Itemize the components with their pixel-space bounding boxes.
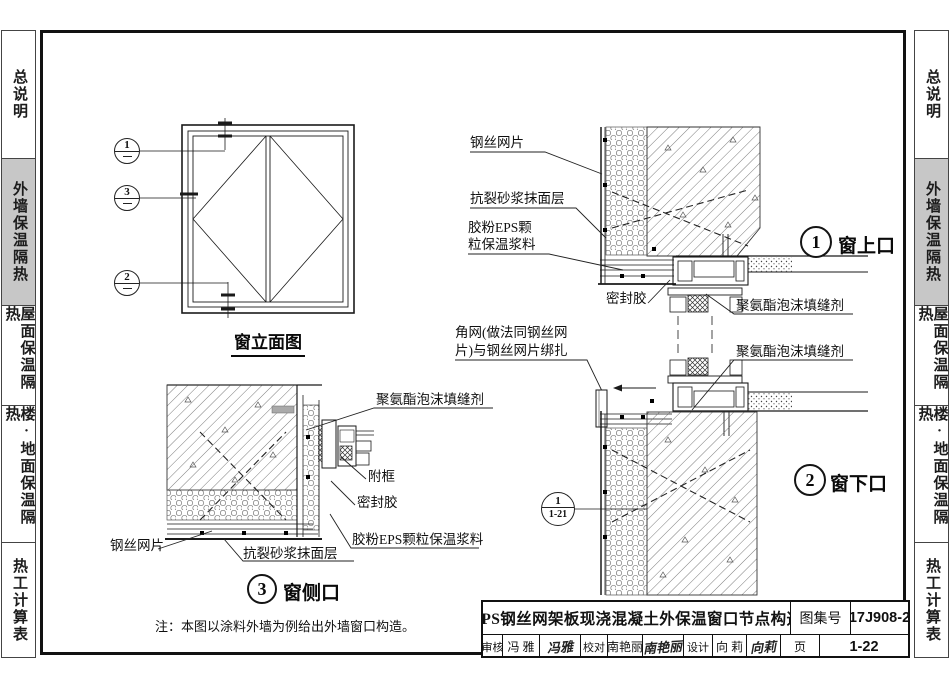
title-block-row2: 审核 冯 雅 冯雅 校对 南艳丽 南艳丽 设计 向 莉 向莉 页 1-22 xyxy=(483,635,908,658)
tab-label: 总说明 xyxy=(924,69,939,120)
callout-eps-slurry-line1: 胶粉EPS颗 xyxy=(468,219,532,236)
detail-1-circle: 1 xyxy=(800,226,832,258)
tab-label: 屋面保温隔热 xyxy=(917,306,947,405)
callout-sealant-d1: 密封胶 xyxy=(606,290,647,307)
signature: 南艳丽 xyxy=(643,636,683,658)
checker-signature: 南艳丽 xyxy=(643,635,684,658)
tab-exterior-wall-insulation: 外墙保温隔热 xyxy=(2,159,35,306)
atlas-page: 总说明 外墙保温隔热 屋面保温隔热 楼·地面保温隔热 热工计算表 总说明 外墙保… xyxy=(0,0,950,691)
marker-number: 2 xyxy=(124,272,130,283)
tab-label: 热工计算表 xyxy=(924,558,939,643)
marker-dash xyxy=(123,203,132,204)
detail-reference-bubble: 1 1-21 xyxy=(541,492,575,526)
ref-number: 1 xyxy=(555,495,561,507)
marker-number: 1 xyxy=(124,140,130,151)
callout-corner-mesh-line2: 片)与钢丝网片绑扎 xyxy=(455,342,568,359)
tab-label: 楼·地面保温隔热 xyxy=(917,406,947,542)
marker-dash xyxy=(123,288,132,289)
checker-name: 南艳丽 xyxy=(608,635,643,658)
drawing-note: 注：本图以涂料外墙为例给出外墙窗口构造。 xyxy=(155,616,415,635)
tab-label: 总说明 xyxy=(11,69,26,120)
marker-divider xyxy=(115,151,139,152)
elevation-marker-1: 1 xyxy=(114,138,140,164)
tab-thermal-calc-table: 热工计算表 xyxy=(2,543,35,657)
callout-crack-resistant-mortar: 抗裂砂浆抹面层 xyxy=(470,190,565,207)
callout-subframe: 附框 xyxy=(368,468,395,485)
callout-steel-mesh-d3: 钢丝网片 xyxy=(110,537,164,554)
design-label: 设计 xyxy=(684,635,713,658)
tab-exterior-wall-insulation: 外墙保温隔热 xyxy=(915,159,948,306)
marker-dash xyxy=(123,156,132,157)
atlas-number-label: 图集号 xyxy=(791,602,851,634)
tab-label: 楼·地面保温隔热 xyxy=(4,406,34,542)
ref-sheet: 1-21 xyxy=(549,508,567,521)
callout-eps-slurry-line2: 粒保温浆料 xyxy=(468,236,536,253)
tab-general-notes: 总说明 xyxy=(915,31,948,159)
signature: 冯雅 xyxy=(546,636,573,657)
reviewer-name: 冯 雅 xyxy=(503,635,540,658)
tab-floor-insulation: 楼·地面保温隔热 xyxy=(2,406,35,543)
callout-corner-mesh-line1: 角网(做法同钢丝网 xyxy=(455,324,568,341)
review-label: 审核 xyxy=(483,635,503,658)
tab-floor-insulation: 楼·地面保温隔热 xyxy=(915,406,948,543)
tab-label: 屋面保温隔热 xyxy=(4,306,34,405)
callout-pu-foam-d3: 聚氨酯泡沫填缝剂 xyxy=(376,391,484,408)
detail-2-name: 窗下口 xyxy=(830,469,887,496)
detail-1-name: 窗上口 xyxy=(838,231,895,258)
atlas-number: 17J908-2 xyxy=(851,602,908,634)
callout-eps-slurry-d3: 胶粉EPS颗粒保温浆料 xyxy=(352,531,483,548)
tab-roof-insulation: 屋面保温隔热 xyxy=(2,306,35,406)
reviewer-signature: 冯雅 xyxy=(540,635,581,658)
left-tab-strip: 总说明 外墙保温隔热 屋面保温隔热 楼·地面保温隔热 热工计算表 xyxy=(1,30,36,658)
designer-signature: 向莉 xyxy=(747,635,781,658)
callout-crack-resistant-mortar-d3: 抗裂砂浆抹面层 xyxy=(243,545,338,562)
detail-3-name: 窗侧口 xyxy=(283,578,340,605)
elevation-marker-2: 2 xyxy=(114,270,140,296)
signature: 向莉 xyxy=(750,636,777,657)
callout-pu-foam-d1: 聚氨酯泡沫填缝剂 xyxy=(736,297,844,314)
elevation-caption: 窗立面图 xyxy=(231,328,305,357)
page-number: 1-22 xyxy=(820,635,908,658)
tab-general-notes: 总说明 xyxy=(2,31,35,159)
tab-roof-insulation: 屋面保温隔热 xyxy=(915,306,948,406)
tab-label: 外墙保温隔热 xyxy=(11,181,26,283)
callout-steel-mesh: 钢丝网片 xyxy=(470,134,524,151)
elevation-marker-3: 3 xyxy=(114,185,140,211)
sheet-title: EPS钢丝网架板现浇混凝土外保温窗口节点构造 xyxy=(483,602,791,634)
marker-divider xyxy=(115,198,139,199)
tab-label: 外墙保温隔热 xyxy=(924,181,939,283)
callout-pu-foam-d2: 聚氨酯泡沫填缝剂 xyxy=(736,343,844,360)
tab-thermal-calc-table: 热工计算表 xyxy=(915,543,948,657)
marker-divider xyxy=(115,283,139,284)
title-block: EPS钢丝网架板现浇混凝土外保温窗口节点构造 图集号 17J908-2 审核 冯… xyxy=(481,600,910,658)
detail-3-circle: 3 xyxy=(247,574,277,604)
detail-2-circle: 2 xyxy=(794,464,826,496)
marker-number: 3 xyxy=(124,187,130,198)
designer-name: 向 莉 xyxy=(713,635,747,658)
page-label: 页 xyxy=(781,635,820,658)
check-label: 校对 xyxy=(581,635,608,658)
tab-label: 热工计算表 xyxy=(11,558,26,643)
right-tab-strip: 总说明 外墙保温隔热 屋面保温隔热 楼·地面保温隔热 热工计算表 xyxy=(914,30,949,658)
callout-sealant-d3: 密封胶 xyxy=(357,494,398,511)
title-block-row1: EPS钢丝网架板现浇混凝土外保温窗口节点构造 图集号 17J908-2 xyxy=(483,602,908,635)
